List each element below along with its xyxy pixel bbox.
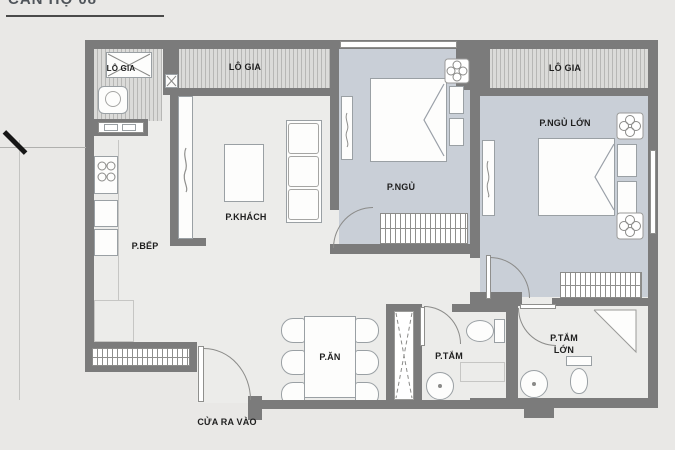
stove-burners-icon bbox=[94, 156, 118, 194]
bedroom-window bbox=[340, 41, 457, 48]
kitchen-lower-cabinet bbox=[94, 300, 134, 342]
pillow-icon bbox=[418, 80, 446, 160]
wall-bottom-step bbox=[524, 405, 554, 418]
wall-shaft-left bbox=[386, 304, 394, 400]
master-toilet-bowl bbox=[570, 368, 588, 394]
toilet-bowl bbox=[466, 320, 494, 342]
master-bedroom-window bbox=[650, 150, 656, 234]
sofa-cushion bbox=[288, 156, 319, 187]
plan-title-wrap: CĂN HỘ 08 bbox=[6, 0, 178, 14]
room-label-master-bathroom-line1: P.TẮM bbox=[550, 332, 578, 344]
nightstand-master bbox=[617, 144, 637, 177]
room-label-dining: P.ĂN bbox=[319, 351, 340, 363]
wall-living-bedroom bbox=[330, 40, 339, 210]
tv-icon-living bbox=[181, 146, 190, 194]
ac-outdoor-cross-icon bbox=[165, 74, 178, 88]
dining-chair bbox=[281, 318, 305, 343]
shaft-cross-icon bbox=[394, 311, 414, 400]
sink-drain-icon bbox=[438, 384, 442, 388]
room-label-master-bathroom-line2: LỚN bbox=[550, 344, 578, 356]
dimension-left-label: 8 bbox=[0, 211, 14, 225]
tv-icon-bedroom bbox=[343, 112, 350, 148]
laundry-basin-drain-icon bbox=[105, 91, 121, 107]
ac-unit-icon bbox=[616, 212, 644, 240]
entrance-label: CỬA RA VÀO bbox=[197, 416, 256, 428]
room-label-loggia-master: LÔ GIA bbox=[549, 62, 581, 74]
wardrobe-bedroom bbox=[380, 213, 468, 244]
wall-left bbox=[85, 40, 94, 343]
ac-unit-icon bbox=[444, 58, 470, 84]
wall-under-loggia-master bbox=[480, 88, 658, 96]
shower-icon bbox=[592, 308, 640, 354]
wardrobe-master bbox=[560, 272, 642, 298]
ac-unit-icon bbox=[616, 112, 644, 140]
sofa-cushion bbox=[288, 189, 319, 220]
wall-bottom-right bbox=[470, 398, 658, 408]
room-label-living: P.KHÁCH bbox=[225, 211, 266, 223]
wall-shaft-top bbox=[386, 304, 422, 311]
dining-chair bbox=[281, 350, 305, 375]
kitchen-sink-bowl-right bbox=[122, 124, 136, 131]
entry-closet bbox=[92, 348, 190, 366]
room-label-kitchen: P.BẾP bbox=[132, 240, 159, 252]
counter-edge-line bbox=[118, 140, 119, 300]
dimension-tick bbox=[3, 130, 28, 155]
master-toilet-tank bbox=[566, 356, 592, 366]
bathroom-counter bbox=[460, 362, 505, 382]
nightstand bbox=[449, 86, 464, 114]
nightstand-master bbox=[617, 181, 637, 214]
plan-title: CĂN HỘ 08 bbox=[8, 0, 97, 8]
room-label-bathroom: P.TẮM bbox=[435, 350, 463, 362]
room-label-loggia-kitchen: LÔ GIA bbox=[107, 63, 136, 75]
dining-chair bbox=[355, 318, 379, 343]
wall-bathroom-top bbox=[452, 304, 514, 312]
toilet-tank bbox=[494, 319, 505, 343]
nightstand bbox=[449, 118, 464, 146]
master-pillow-icon bbox=[590, 140, 616, 214]
outside-patch bbox=[85, 372, 197, 450]
master-sink-drain-icon bbox=[532, 382, 536, 386]
tv-icon-master bbox=[484, 160, 491, 198]
wall-bathrooms-divider bbox=[506, 304, 518, 400]
wall-kitchen-living bbox=[170, 95, 178, 246]
room-label-master-bedroom: P.NGỦ LỚN bbox=[539, 117, 590, 129]
kitchen-cabinet bbox=[94, 229, 118, 256]
dimension-extension-line-h bbox=[0, 147, 86, 148]
floor-plan: LÔ GIA LÔ GIA LÔ GIA P.NGỦ LỚN P.NGỦ P.K… bbox=[0, 0, 675, 450]
plan-title-underline bbox=[6, 15, 164, 17]
room-label-bedroom: P.NGỦ bbox=[387, 181, 415, 193]
dimension-extension-line-v bbox=[19, 140, 20, 400]
wall-under-loggia-living bbox=[170, 88, 338, 96]
room-label-loggia-living: LÔ GIA bbox=[229, 61, 261, 73]
fridge bbox=[94, 200, 118, 227]
coffee-table bbox=[224, 144, 264, 202]
sofa-cushion bbox=[288, 123, 319, 154]
wall-kitchen-living-foot bbox=[170, 238, 206, 246]
dining-chair bbox=[355, 350, 379, 375]
room-label-master-bathroom: P.TẮM LỚN bbox=[550, 332, 578, 356]
wall-masterbath-top bbox=[552, 298, 658, 306]
kitchen-sink-bowl-left bbox=[104, 124, 118, 131]
